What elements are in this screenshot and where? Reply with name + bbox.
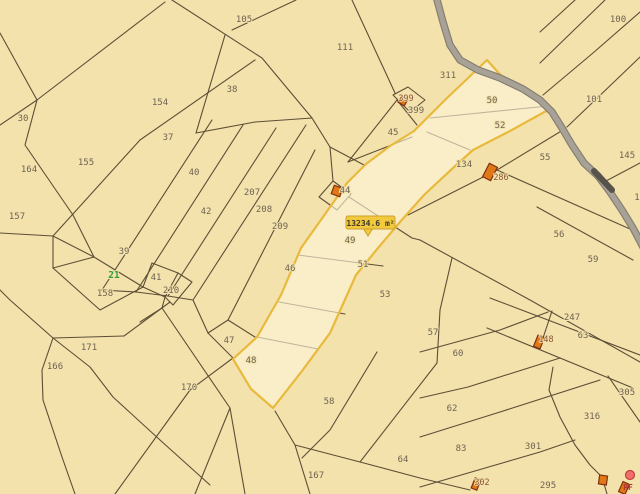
parcel-label: 58: [324, 397, 335, 407]
parcel-label: 63: [578, 331, 589, 341]
parcel-label: 44: [340, 186, 351, 196]
parcel-label: 37: [163, 133, 174, 143]
cadastral-map[interactable]: 1051111543830371551644015742207208209392…: [0, 0, 640, 494]
building-label: 302: [474, 478, 489, 488]
parcel-label: 157: [9, 212, 25, 222]
parcel-label: 100: [610, 15, 626, 25]
parcel-label: 46: [285, 264, 296, 274]
parcel-label: 171: [81, 343, 97, 353]
parcel-label: 134: [456, 160, 472, 170]
parcel-label: 47: [224, 336, 235, 346]
area-value: 13234.6 m²: [346, 219, 394, 228]
parcel-label: 60: [453, 349, 464, 359]
parcel-label: 399: [408, 106, 424, 116]
building-icon: [598, 475, 607, 485]
pf-label: PF: [623, 483, 633, 492]
parcel-label: 55: [540, 153, 551, 163]
parcel-label: 207: [244, 188, 260, 198]
building-label: 148: [538, 335, 553, 345]
parcel-label: 247: [564, 313, 580, 323]
parcel-label: 170: [181, 383, 197, 393]
parcel-label: 208: [256, 205, 272, 215]
parcel-label: 64: [398, 455, 409, 465]
parcel-label: 50: [487, 96, 498, 106]
parcel-label: 155: [78, 158, 94, 168]
parcel-label: 40: [189, 168, 200, 178]
parcel-label: 166: [47, 362, 63, 372]
parcel-label: 295: [540, 481, 556, 491]
parcel-label: 164: [21, 165, 37, 175]
building-label: 399: [398, 94, 413, 104]
parcel-label: 56: [554, 230, 565, 240]
parcel-label: 209: [272, 222, 288, 232]
pf-point-icon: [626, 471, 635, 480]
parcel-label: 1: [634, 193, 639, 203]
parcel-label: 301: [525, 442, 541, 452]
parcel-label: 41: [151, 273, 162, 283]
parcel-label: 42: [201, 207, 212, 217]
map-viewport[interactable]: 1051111543830371551644015742207208209392…: [0, 0, 640, 494]
parcel-label: 101: [586, 95, 602, 105]
parcel-label: 210: [163, 286, 179, 296]
parcel-label: 39: [119, 247, 130, 257]
parcel-label: 45: [388, 128, 399, 138]
parcel-label: 38: [227, 85, 238, 95]
parcel-label: 57: [428, 328, 439, 338]
parcel-label: 30: [18, 114, 29, 124]
parcel-label: 316: [584, 412, 600, 422]
parcel-label: 167: [308, 471, 324, 481]
parcel-label: 305: [619, 388, 635, 398]
parcel-label: 51: [358, 260, 369, 270]
parcel-label: 111: [337, 43, 353, 53]
parcel-label: 52: [495, 121, 506, 131]
parcel-label: 48: [246, 356, 257, 366]
parcel-label: 59: [588, 255, 599, 265]
parcel-label: 311: [440, 71, 456, 81]
parcel-label: 145: [619, 151, 635, 161]
parcel-label: 21: [108, 270, 120, 281]
parcel-label: 62: [447, 404, 458, 414]
parcel-label: 83: [456, 444, 467, 454]
parcel-label: 105: [236, 15, 252, 25]
parcel-label: 158: [97, 289, 113, 299]
parcel-label: 53: [380, 290, 391, 300]
parcel-label: 49: [345, 236, 356, 246]
parcel-label: 154: [152, 98, 168, 108]
building-label: 286: [493, 173, 508, 183]
